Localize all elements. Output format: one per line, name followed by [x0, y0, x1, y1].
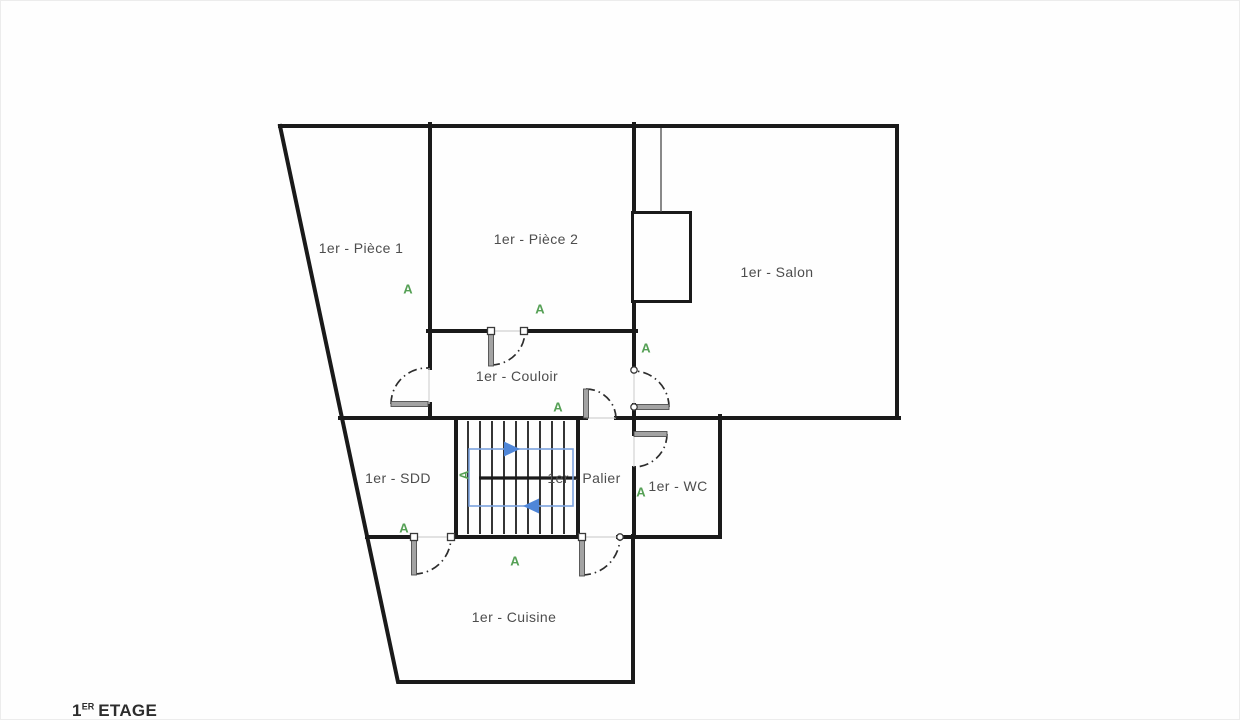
chimney-block [633, 213, 691, 302]
door-hinge [617, 534, 623, 540]
floor-number: 1 [72, 701, 82, 720]
door-hinge [631, 404, 637, 410]
room-label-salon: 1er - Salon [741, 264, 814, 280]
door-post [579, 534, 586, 541]
floor-number-suffix: ER [82, 701, 95, 711]
door-annotation-stairs: A [457, 470, 472, 479]
door-annotation-wc: A [636, 485, 645, 500]
stair-up-arrow-icon [504, 442, 520, 457]
exterior-wall-slant-bottom [280, 126, 633, 682]
door-annotation-sdd: A [399, 521, 408, 536]
floor-title: 1ERETAGE [72, 701, 157, 720]
door-post [521, 328, 528, 335]
door-post [488, 328, 495, 335]
door-leaf-palier-cuisine [580, 538, 585, 576]
door-annotation-cuisine: A [510, 554, 519, 569]
room-label-couloir: 1er - Couloir [476, 368, 558, 384]
room-label-wc: 1er - WC [648, 478, 707, 494]
door-leaf-wc [634, 432, 667, 437]
stair-down-arrow-icon [523, 499, 539, 514]
room-label-palier: 1er - Palier [547, 470, 620, 486]
room-label-cuisine: 1er - Cuisine [472, 609, 557, 625]
door-leaf-couloir-salon [634, 405, 669, 410]
floor-word: ETAGE [98, 701, 157, 720]
room-label-piece2: 1er - Pièce 2 [494, 231, 579, 247]
door-leaf-piece2-couloir [489, 332, 494, 366]
door-annotation-couloir: A [553, 400, 562, 415]
floor-plan-page: 1er - Pièce 1 1er - Pièce 2 1er - Salon … [0, 0, 1240, 720]
door-post [411, 534, 418, 541]
door-leaf-piece1-couloir [391, 402, 428, 407]
door-leaf-couloir-palier [584, 389, 589, 418]
door-annotation-piece2: A [535, 302, 544, 317]
door-annotation-piece1: A [403, 282, 412, 297]
room-label-piece1: 1er - Pièce 1 [319, 240, 404, 256]
floor-plan-drawing [1, 1, 1240, 720]
door-leaf-sdd-cuisine [412, 538, 417, 575]
room-label-sdd: 1er - SDD [365, 470, 431, 486]
door-post [448, 534, 455, 541]
door-annotation-salon: A [641, 341, 650, 356]
door-hinge [631, 367, 637, 373]
door-jamb-posts [411, 328, 638, 541]
